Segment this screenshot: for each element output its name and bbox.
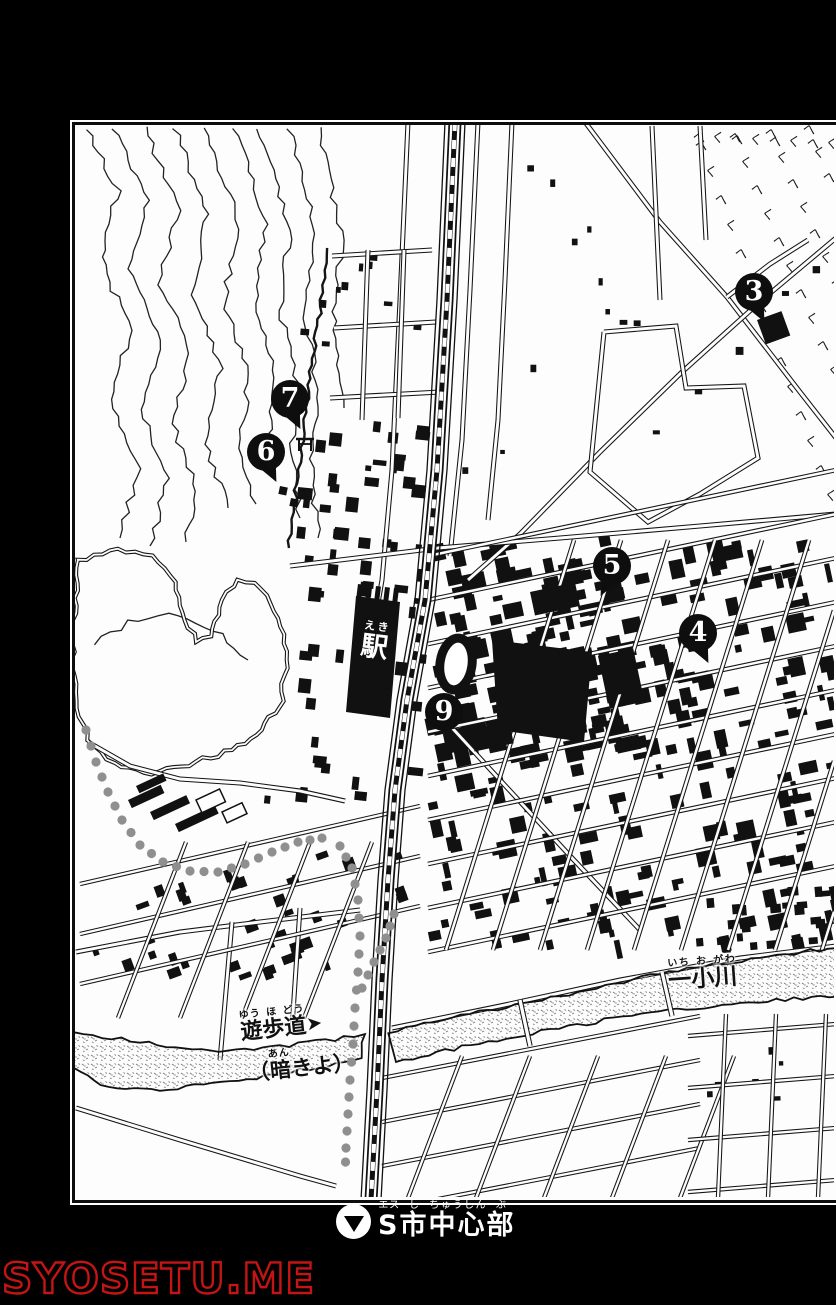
map-marker-7: 7: [271, 380, 309, 418]
map-marker-4: 4: [679, 614, 717, 652]
marker-number: 9: [425, 693, 463, 731]
map-marker-9: 9: [425, 693, 463, 731]
manga-map-page: へくへくへくへくへくへくへくへくへくへくへくへくへくへくへくへくへくへくへくへへ…: [0, 0, 836, 1305]
caption: Sエス市し中心ちゅうしん部ぶ: [336, 1200, 515, 1242]
promenade-arrow-icon: ➤: [305, 1012, 323, 1036]
marker-number: 5: [593, 547, 631, 585]
map-marker-6: 6: [247, 433, 285, 471]
watermark: SYOSETU.ME: [2, 1254, 315, 1303]
station-label: 駅えき: [340, 616, 411, 668]
map-panel: [72, 122, 836, 1203]
map-marker-5: 5: [593, 547, 631, 585]
marker-number: 7: [271, 380, 309, 418]
map-marker-3: 3: [735, 273, 773, 311]
river-label: 一いち小お川がわ: [667, 954, 738, 996]
caption-title: Sエス市し中心ちゅうしん部ぶ: [378, 1200, 515, 1242]
down-triangle-circle-icon: [336, 1204, 371, 1239]
marker-number: 6: [247, 433, 285, 471]
marker-number: 4: [679, 614, 717, 652]
marker-number: 3: [735, 273, 773, 311]
